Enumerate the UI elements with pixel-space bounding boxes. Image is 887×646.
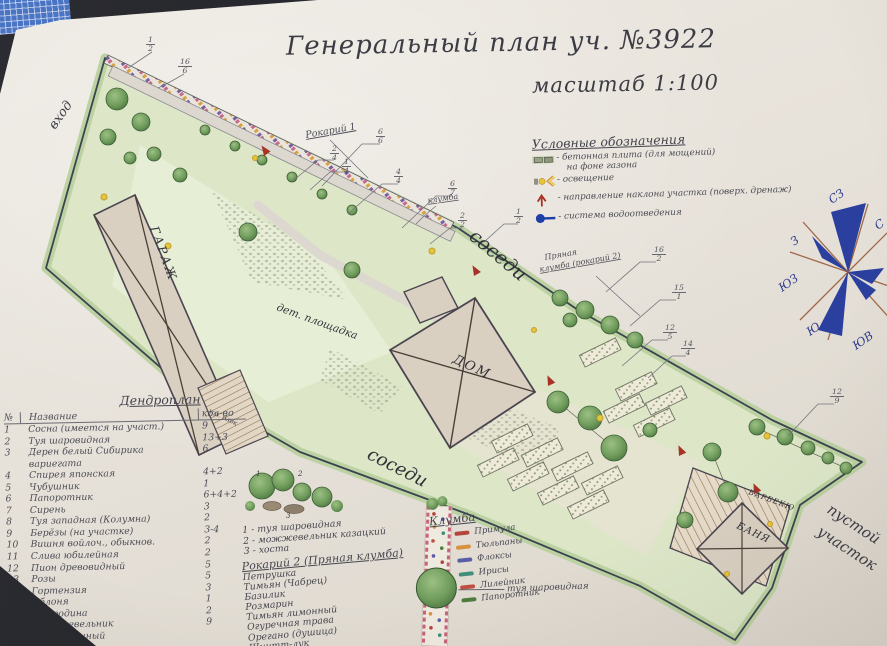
cell: 14 — [7, 586, 23, 598]
cell: 3 — [5, 447, 21, 470]
paper-sheet: СЗ С З ЮЗ Ю ЮВ вход ГАРАЖ хоз. блок дет.… — [0, 0, 887, 646]
plant-callout: 12 — [146, 36, 155, 53]
cell: Можжевельникобыкновенный — [24, 617, 200, 644]
plant-callout: 144 — [681, 340, 695, 357]
swatch-label: Тюльпаны — [475, 536, 523, 551]
color-swatch — [459, 571, 474, 577]
plant-callout: 129 — [830, 388, 844, 405]
legend-item-drain-text: - система водоотведения — [558, 209, 682, 223]
cell: 12 — [7, 563, 23, 575]
color-swatch — [461, 597, 476, 603]
plant-callout: 151 — [672, 284, 686, 301]
concrete-plate-icon — [532, 153, 557, 169]
color-swatch — [457, 557, 472, 563]
header-qty: кол-во — [198, 407, 246, 419]
cell: 8 — [6, 517, 22, 529]
rockery1-mark-3: 3 — [286, 512, 291, 520]
cell: 7 — [6, 505, 22, 517]
swatch-label: Примула — [474, 523, 516, 537]
cell: 6 — [5, 493, 21, 505]
cell: 5 — [5, 482, 21, 494]
rockery1-mark-2: 2 — [297, 470, 303, 478]
light-icon — [533, 175, 558, 191]
plant-callout: 12 — [514, 208, 523, 225]
compass-n-label: С — [872, 216, 887, 233]
cell: 2 — [4, 436, 20, 448]
plant-callout: 166 — [178, 58, 192, 75]
entrance-label: вход — [46, 98, 76, 132]
plant-callout: 14 — [342, 158, 351, 175]
plant-callout: 24 — [330, 145, 339, 162]
cell: 11 — [7, 551, 23, 563]
header-no: № — [4, 412, 21, 423]
color-swatch — [456, 544, 471, 550]
compass-s-label: Ю — [803, 319, 823, 339]
swatch-label: Флоксы — [477, 550, 513, 564]
cell: 17 — [8, 620, 24, 643]
plant-callout: 162 — [652, 246, 666, 263]
cell: 4 — [5, 470, 21, 482]
legend-item-plate-text: - бетонная плита (для мощений) на фоне г… — [556, 148, 716, 173]
color-swatch — [454, 531, 469, 537]
plant-callout: 66 — [376, 128, 385, 145]
legend-item-light-text: - освещение — [557, 174, 614, 186]
drainage-icon — [534, 212, 559, 228]
rockery1-plan-label: Рокарий 1 — [304, 121, 357, 141]
compass-w-label: З — [788, 233, 802, 249]
dendroplan-title: Дендроплан — [119, 390, 245, 408]
cell: 16 — [8, 609, 24, 621]
photo-of-garden-plan: СЗ С З ЮЗ Ю ЮВ вход ГАРАЖ хоз. блок дет.… — [0, 0, 887, 646]
swatch-label: Ирисы — [478, 564, 509, 577]
compass-se-label: ЮВ — [849, 328, 876, 353]
slope-arrow-icon — [533, 193, 558, 211]
cell: 10 — [6, 540, 22, 552]
dendroplan-table: Дендроплан № Название кол-во 1Сосна (име… — [3, 390, 250, 643]
cell: 15 — [8, 597, 24, 609]
plant-callout: 44 — [394, 168, 403, 185]
compass-sw-label: ЮЗ — [775, 271, 801, 295]
plant-callout: 22 — [458, 212, 467, 229]
cell: 9 — [200, 616, 250, 640]
rockery1-mark-1: 1 — [256, 470, 260, 478]
plan-scale: масштаб 1:100 — [532, 70, 719, 97]
rockery2-list: Рокарий 2 (Пряная клумба) Петрушка Тимья… — [241, 546, 410, 646]
plant-callout: 67 — [448, 180, 457, 197]
color-swatch — [460, 584, 475, 590]
cell: 1 — [4, 424, 20, 436]
cell: 9 — [6, 528, 22, 540]
legend-block: Условные обозначения - бетонная плита (д… — [531, 125, 864, 228]
cell: 6 — [196, 443, 246, 467]
plant-callout: 125 — [663, 324, 677, 341]
cell: 13 — [7, 574, 23, 586]
